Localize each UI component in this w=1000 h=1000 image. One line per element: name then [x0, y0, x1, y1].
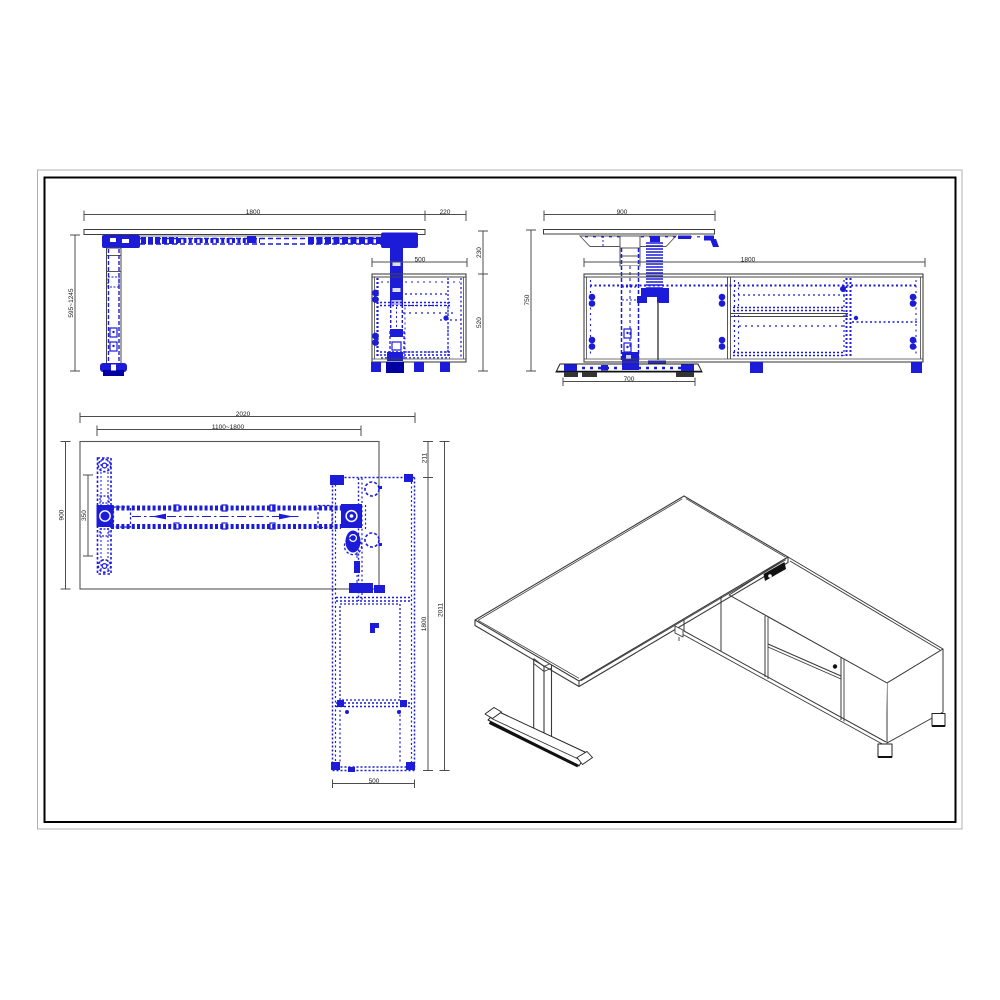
- svg-text:230: 230: [476, 247, 483, 258]
- svg-text:2020: 2020: [236, 411, 251, 418]
- svg-text:1800: 1800: [421, 616, 428, 631]
- svg-text:220: 220: [440, 209, 451, 216]
- svg-text:595~1245: 595~1245: [68, 288, 75, 317]
- svg-text:900: 900: [59, 509, 66, 520]
- svg-text:750: 750: [524, 294, 531, 305]
- svg-text:1800: 1800: [741, 256, 756, 263]
- svg-text:2011: 2011: [438, 603, 445, 617]
- svg-text:500: 500: [369, 778, 380, 785]
- svg-text:700: 700: [624, 376, 635, 383]
- svg-text:1100~1800: 1100~1800: [212, 424, 245, 431]
- svg-text:350: 350: [81, 510, 88, 521]
- svg-text:900: 900: [617, 209, 628, 216]
- svg-text:500: 500: [415, 256, 426, 263]
- svg-text:520: 520: [476, 317, 483, 328]
- svg-text:1800: 1800: [246, 209, 261, 216]
- svg-text:211: 211: [422, 452, 429, 463]
